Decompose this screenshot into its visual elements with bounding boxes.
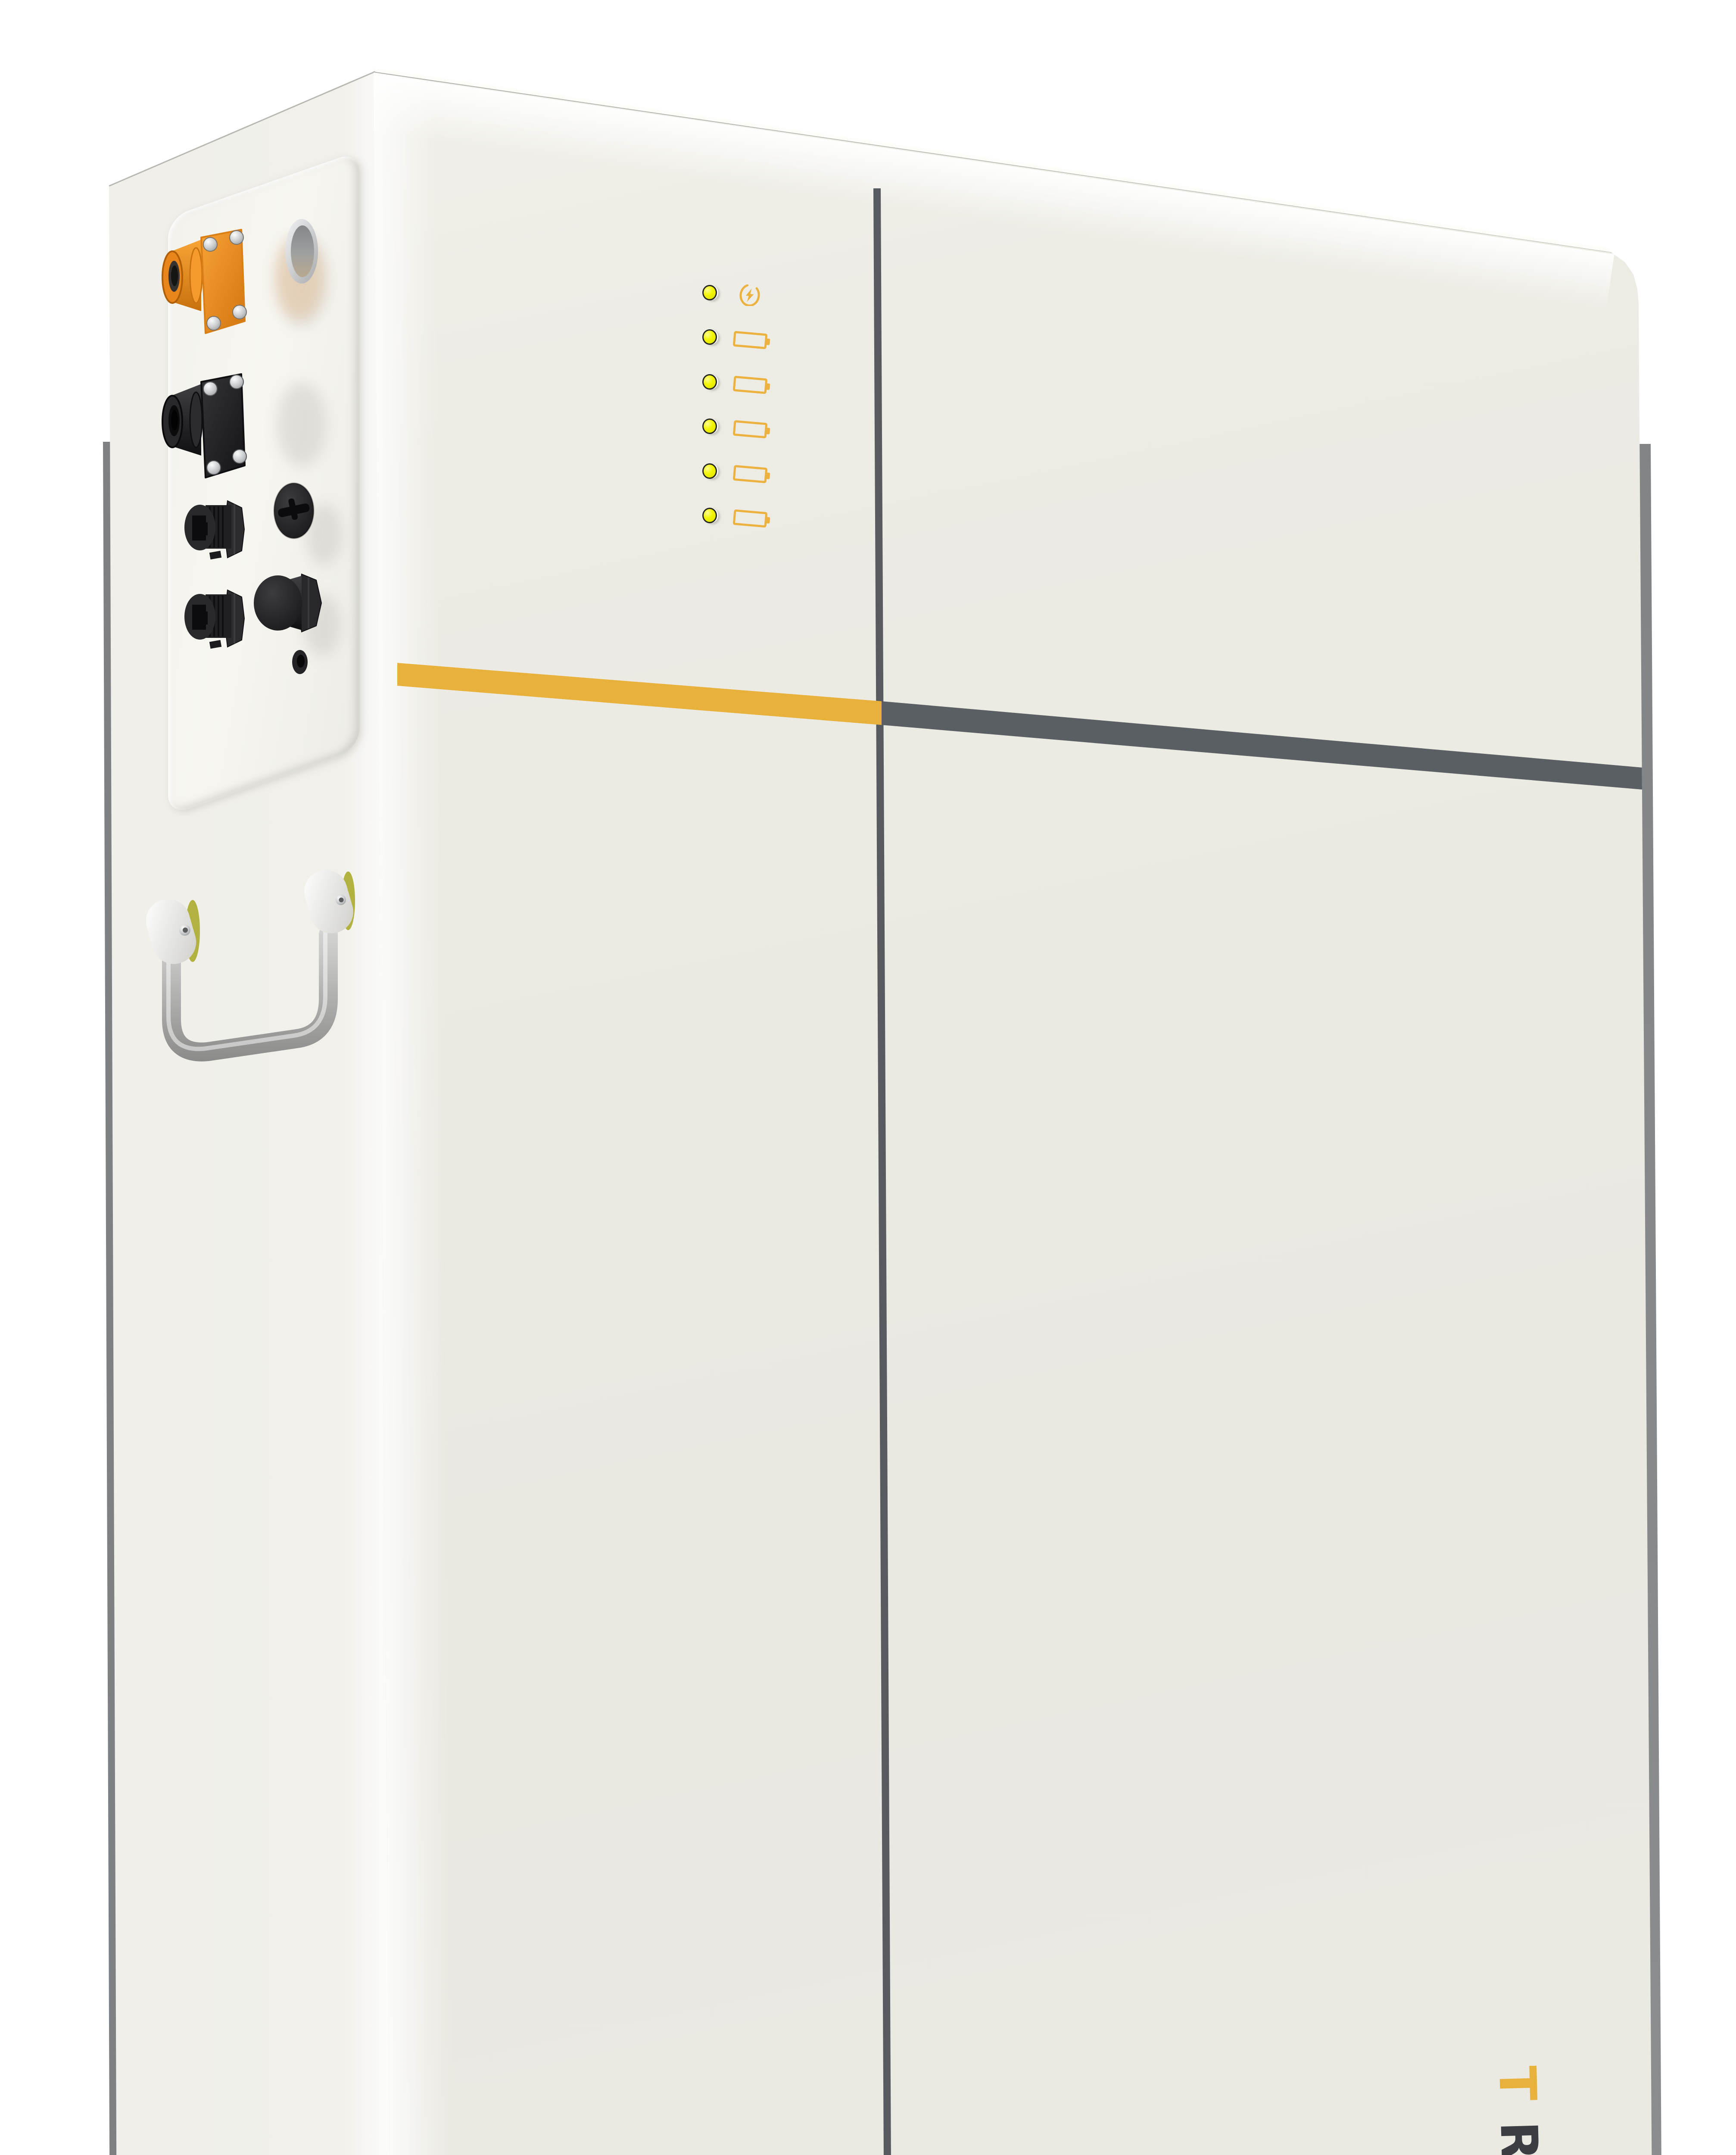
brand-logo-triple: TRIPLE: [1492, 2065, 1551, 2155]
carry-handle: [141, 865, 358, 1052]
power-button: [285, 219, 318, 284]
indicator-row: [702, 462, 806, 484]
dc-connector-orange: [162, 230, 246, 333]
product-photo-triple-power-battery: TRIPLE POWER: [0, 0, 1736, 2155]
battery-icon: [733, 331, 768, 350]
comm-port-lower: [184, 590, 244, 649]
slot-cap: [274, 483, 314, 538]
battery-icon: [733, 376, 768, 394]
status-led: [702, 374, 717, 390]
vent-hole: [292, 650, 308, 674]
indicator-row: [702, 328, 806, 350]
indicator-row: [702, 506, 806, 528]
indicator-row: [702, 284, 806, 305]
status-led: [702, 508, 717, 523]
indicator-row: [702, 373, 806, 394]
status-led: [702, 285, 717, 300]
bolt-circle-icon: [739, 284, 761, 306]
brand-letter-t: T: [1487, 2065, 1548, 2122]
status-led: [702, 329, 717, 345]
panel-divider: [873, 188, 894, 2155]
comm-port-upper: [184, 501, 244, 559]
status-led: [702, 419, 717, 434]
status-led: [702, 463, 717, 479]
battery-icon: [733, 420, 768, 439]
handle-mount-left: [141, 894, 201, 969]
handle-mount-right: [299, 865, 358, 938]
battery-icon: [733, 465, 768, 484]
brand-letters-riple: RIPLE: [1489, 2121, 1555, 2155]
gland-plug: [254, 574, 321, 632]
battery-icon: [733, 509, 768, 528]
dc-connector-black: [162, 374, 246, 478]
indicator-row: [702, 417, 806, 439]
